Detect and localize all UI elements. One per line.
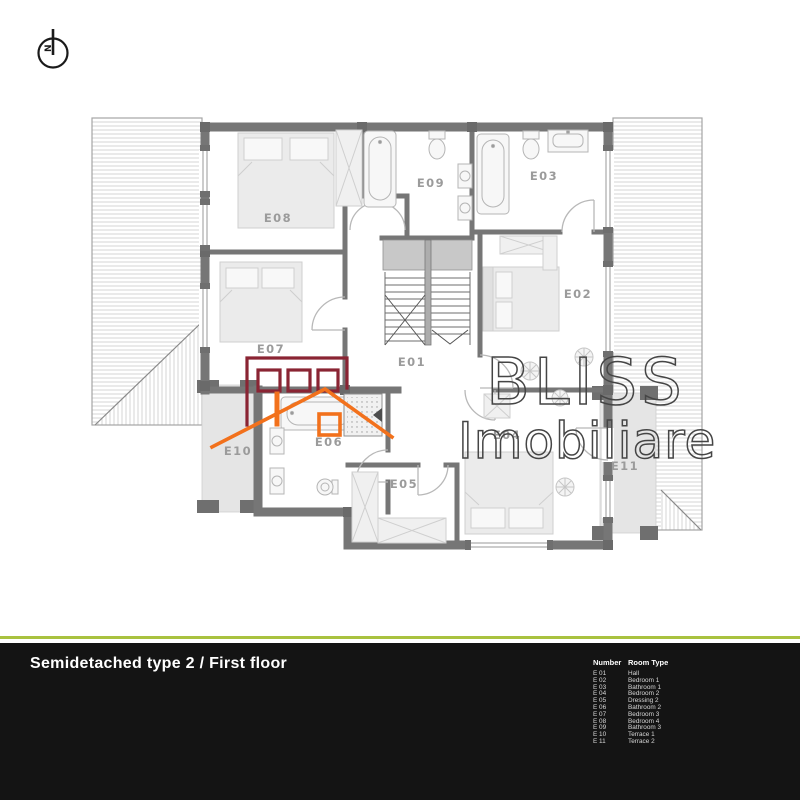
room-label-e02: E02	[564, 287, 592, 301]
staircase	[383, 240, 472, 345]
room-legend: NumberRoom Type E 01Hall E 02Bedroom 1 E…	[593, 658, 783, 746]
legend-header-type: Room Type	[628, 658, 668, 667]
room-label-e10: E10	[224, 444, 252, 458]
page-title: Semidetached type 2 / First floor	[30, 655, 287, 673]
watermark-text: BLISS Imobiliare	[458, 346, 716, 470]
legend-row: E 11Terrace 2	[593, 739, 783, 746]
room-label-e01: E01	[398, 355, 426, 369]
toilet-e09	[429, 131, 445, 159]
north-compass-icon: N	[39, 29, 68, 68]
bathtub-e09	[364, 131, 396, 207]
toilet-e06	[317, 479, 338, 495]
bed-e02	[483, 267, 559, 331]
room-label-e08: E08	[264, 211, 292, 225]
legend-header: NumberRoom Type	[593, 658, 783, 667]
legend-row: E 06Bathroom 2	[593, 705, 783, 712]
bed-e07	[220, 262, 302, 342]
legend-row: E 05Dressing 2	[593, 698, 783, 705]
room-label-e07: E07	[257, 342, 285, 356]
legend-number: E 11	[593, 739, 628, 746]
watermark-line1: BLISS	[486, 346, 686, 420]
legend-header-number: Number	[593, 658, 628, 667]
watermark-line2: Imobiliare	[458, 412, 716, 470]
bathtub-e03	[477, 134, 509, 214]
legend-row: E 07Bedroom 3	[593, 712, 783, 719]
legend-row: E 10Terrace 1	[593, 732, 783, 739]
accent-divider-line	[0, 636, 800, 639]
legend-row: E 02Bedroom 1	[593, 678, 783, 685]
roof-left	[92, 118, 202, 425]
legend-type: Terrace 2	[628, 739, 655, 746]
toilet-e03	[523, 131, 539, 159]
legend-row: E 01Hall	[593, 671, 783, 678]
room-label-e03: E03	[530, 169, 558, 183]
legend-row: E 08Bedroom 4	[593, 719, 783, 726]
legend-row: E 04Bedroom 2	[593, 691, 783, 698]
floor-plan-page: N	[0, 0, 800, 800]
footer-bar: Semidetached type 2 / First floor Number…	[0, 643, 800, 800]
room-label-e06: E06	[315, 435, 343, 449]
legend-row: E 03Bathroom 1	[593, 685, 783, 692]
room-label-e05: E05	[390, 477, 418, 491]
compass-north-label: N	[44, 44, 54, 52]
legend-row: E 09Bathroom 3	[593, 725, 783, 732]
room-label-e09: E09	[417, 176, 445, 190]
